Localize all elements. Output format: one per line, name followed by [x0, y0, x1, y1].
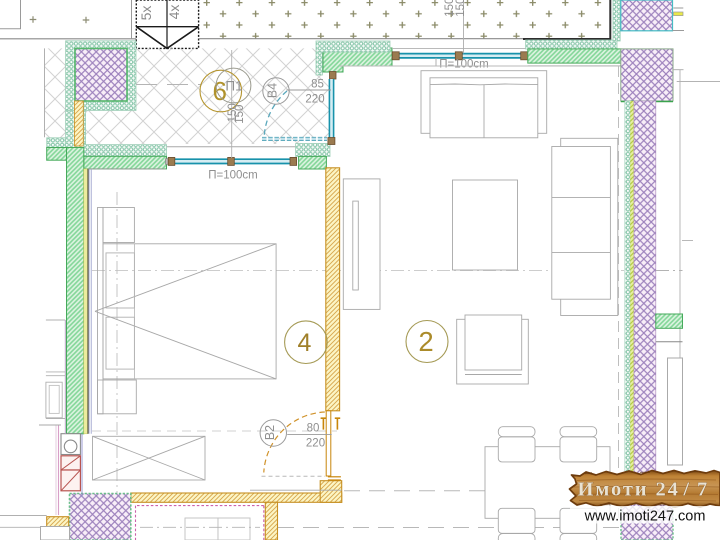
svg-text:www.imoti247.com: www.imoti247.com [584, 509, 706, 525]
svg-text:150: 150 [234, 105, 246, 124]
svg-text:B2: B2 [263, 425, 277, 440]
svg-text:5x: 5x [138, 6, 154, 21]
svg-text:85: 85 [311, 79, 324, 91]
svg-text:4: 4 [298, 329, 312, 357]
svg-text:Π=100cm: Π=100cm [208, 170, 258, 182]
svg-text:Π=100cm: Π=100cm [439, 59, 489, 71]
svg-text:Π1: Π1 [225, 79, 242, 94]
svg-text:220: 220 [306, 438, 325, 450]
svg-text:4x: 4x [166, 5, 182, 20]
svg-text:80: 80 [307, 423, 320, 435]
svg-text:B4: B4 [266, 83, 280, 98]
svg-text:150: 150 [455, 0, 467, 17]
svg-text:2: 2 [418, 326, 433, 357]
svg-text:220: 220 [305, 94, 324, 106]
svg-text:Имоти 24 / 7: Имоти 24 / 7 [578, 478, 710, 500]
